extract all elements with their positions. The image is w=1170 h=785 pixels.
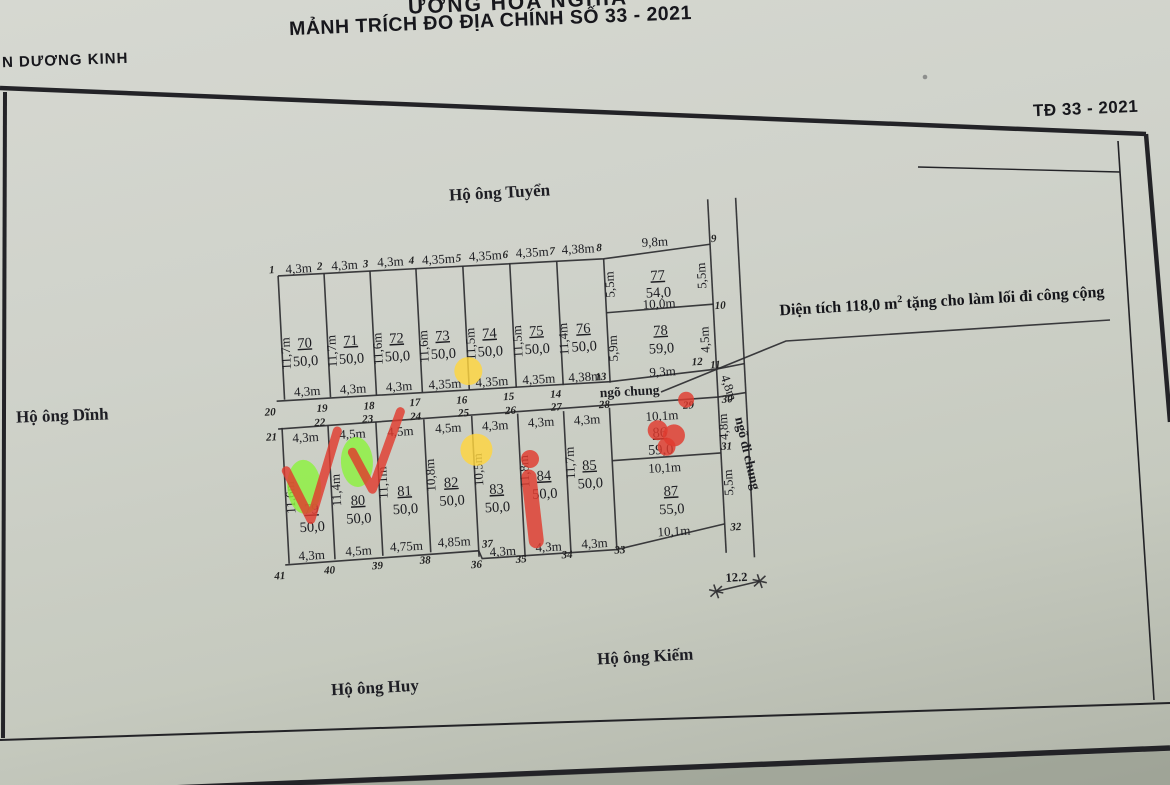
dim-label: 5,5m	[693, 262, 709, 289]
corner-label: 14	[550, 388, 562, 401]
parcel-area: 50,0	[524, 341, 550, 358]
corner-label: 36	[470, 559, 483, 572]
corner-label: 4	[407, 255, 415, 267]
corner-label: 35	[514, 553, 527, 566]
corner-label: 28	[597, 399, 610, 412]
parcel-area: 55,0	[659, 501, 685, 518]
dim-label: 4,35m	[422, 251, 456, 268]
dim-label: 4,75m	[390, 538, 424, 555]
parcel-id: 81	[397, 483, 412, 500]
corner-label: 3	[362, 258, 370, 270]
dim-label: 11,5m	[509, 325, 526, 358]
corner-label: 21	[265, 431, 278, 444]
dim-label: 4,5m	[345, 542, 372, 558]
frame-left-border	[3, 92, 5, 738]
parcel-area: 50,0	[439, 492, 465, 509]
corner-label: 6	[502, 249, 509, 261]
parcel-area: 59,0	[648, 340, 674, 357]
lane-width-value: 12.2	[725, 570, 748, 585]
parcel-area: 50,0	[571, 338, 597, 355]
parcel-area: 50,0	[392, 501, 418, 518]
lane-name-horizontal: ngõ chung	[599, 382, 660, 400]
corner-label: 8	[596, 242, 603, 254]
dim-label: 4,5m	[696, 326, 712, 353]
corner-label: 39	[371, 560, 384, 573]
dim-label: 4,3m	[294, 383, 321, 399]
parcel-id: 78	[653, 323, 668, 340]
corner-label: 24	[409, 411, 422, 424]
dim-label: 5,5m	[601, 271, 617, 298]
corner-label: 11	[710, 359, 721, 372]
dim-label: 4,3m	[285, 260, 312, 276]
map-canvas: 12.2 1 4,3m 2 4,3m 3 4,3m 4 4,35m 5 4,35…	[0, 0, 1170, 785]
parcel-area: 50,0	[384, 348, 410, 365]
parcel-id: 83	[489, 481, 504, 498]
parcel-id: 77	[650, 268, 665, 285]
corner-label: 26	[504, 405, 517, 418]
corner-label: 2	[316, 261, 324, 273]
dim-label: 10,0m	[642, 295, 676, 312]
dim-label: 4,3m	[331, 257, 358, 273]
dim-label: 9,3m	[649, 363, 676, 379]
dim-label: 10,1m	[648, 459, 682, 476]
dim-label: 4,3m	[581, 535, 608, 551]
cadastral-grid: 12.2 1 4,3m 2 4,3m 3 4,3m 4 4,35m 5 4,35…	[254, 197, 769, 621]
scanned-cadastral-sheet: { "colors":{"paper":"#cfd2ca","ink":"#2c…	[0, 0, 1170, 785]
parcel-area: 50,0	[338, 351, 364, 368]
corner-label: 9	[711, 233, 718, 245]
parcel-area: 50,0	[484, 499, 510, 516]
dim-label: 4,35m	[468, 247, 502, 264]
red-marker-stroke	[529, 477, 536, 541]
dim-label: 5,5m	[720, 469, 736, 496]
parcel-id: 71	[343, 333, 358, 350]
dim-label: 11,7m	[561, 446, 578, 479]
dim-label: 4,38m	[561, 240, 595, 257]
corner-label: 34	[560, 549, 573, 562]
parcel-area: 50,0	[577, 475, 603, 492]
dim-label: 4,35m	[522, 371, 556, 388]
dim-label: 4,35m	[515, 244, 549, 261]
parcel-id: 76	[576, 321, 591, 338]
parcel-area: 50,0	[430, 346, 456, 363]
corner-label: 32	[729, 521, 742, 534]
parcel-id: 73	[435, 328, 450, 345]
corner-label: 5	[455, 252, 462, 264]
corner-label: 22	[313, 417, 326, 430]
parcel-id: 80	[350, 493, 365, 510]
corner-label: 13	[595, 371, 607, 384]
dim-label: 4,85m	[437, 533, 471, 550]
corner-label: 19	[316, 402, 328, 415]
corner-label: 10	[714, 299, 726, 312]
corner-label: 23	[361, 413, 374, 426]
corner-label: 33	[613, 544, 626, 557]
parcel-area: 50,0	[293, 353, 319, 370]
dim-label: 4,3m	[482, 417, 509, 433]
dim-label: 11,4m	[328, 474, 345, 507]
corner-label: 40	[323, 564, 336, 577]
dim-label: 11,7m	[277, 337, 294, 370]
dim-label: 4,3m	[385, 378, 412, 394]
corner-label: 20	[263, 406, 276, 419]
parcel-id: 72	[389, 330, 404, 347]
corner-label: 7	[549, 245, 556, 257]
parcel-area: 50,0	[477, 343, 503, 360]
ink-speck	[923, 75, 928, 80]
lane-width-survey-mark: 12.2	[708, 569, 767, 599]
dim-label: 11,5m	[462, 327, 479, 360]
parcel-area: 50,0	[346, 510, 372, 527]
corner-label: 18	[363, 400, 375, 413]
dim-label: 11,7m	[323, 335, 340, 368]
lane-name-vertical: ngõ đi chung	[732, 415, 763, 491]
parcel-id: 70	[297, 335, 312, 352]
dim-label: 4,3m	[573, 411, 600, 427]
dim-label: 9,8m	[641, 233, 668, 249]
dim-label: 4,5m	[435, 420, 462, 436]
frame-inner-horizontal-line	[918, 167, 1120, 172]
parcel-id: 85	[582, 457, 597, 474]
corner-label: 25	[457, 407, 470, 420]
map-frame	[0, 75, 1170, 785]
dim-label: 4,3m	[340, 380, 367, 396]
east-block-parcels: 77 54,0 5,5m 5,5m 10,0m 10 78 59,0 5,9m …	[590, 261, 730, 383]
dim-label: 4,3m	[292, 429, 319, 445]
dim-label: 10,8m	[422, 458, 439, 492]
corner-label: 38	[418, 554, 431, 567]
corner-label: 41	[273, 570, 286, 583]
dim-label: 4,3m	[377, 253, 404, 269]
frame-right-border	[1146, 134, 1170, 422]
dim-label: 11,6m	[369, 332, 386, 365]
corner-label: 27	[550, 401, 563, 414]
corner-label: 1	[269, 264, 275, 276]
corner-label: 31	[720, 440, 733, 453]
dim-label: 10,1m	[657, 523, 691, 540]
frame-top-border	[0, 88, 1146, 134]
parcel-id: 84	[536, 468, 552, 485]
corner-label: 15	[503, 391, 515, 404]
dim-label: 5,9m	[605, 335, 621, 362]
parcel-id: 87	[663, 483, 678, 500]
corner-label: 17	[409, 397, 421, 410]
dim-label: 4,8m	[715, 413, 731, 440]
frame-inner-vertical-line	[1118, 141, 1154, 700]
dim-label: 11,6m	[415, 330, 432, 363]
dim-label: 11,4m	[555, 322, 572, 355]
yellow-highlight-dot	[460, 433, 494, 467]
parcel-id: 75	[529, 323, 544, 340]
corner-label: 16	[456, 394, 468, 407]
parcel-id: 74	[482, 326, 498, 343]
dim-label: 4,3m	[489, 543, 516, 559]
corner-label: 12	[691, 356, 703, 369]
dim-label: 4,3m	[528, 414, 555, 430]
parcel-id: 82	[444, 475, 459, 492]
corner-label: 37	[481, 538, 494, 551]
frame-bottom-inner-border	[0, 703, 1170, 740]
dim-label: 4,3m	[298, 547, 325, 563]
